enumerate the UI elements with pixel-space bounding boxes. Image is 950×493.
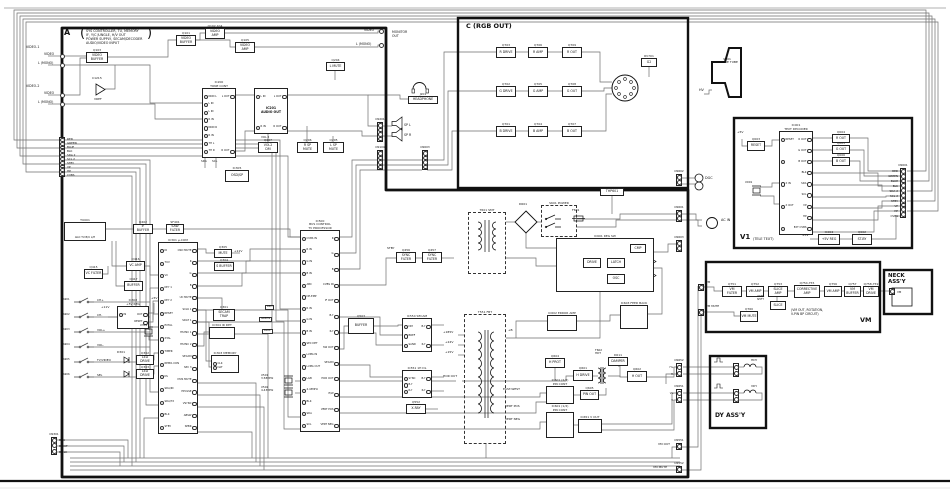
wire [340, 393, 546, 397]
module-g2: G2RV701 [641, 58, 657, 67]
label: +B [508, 329, 513, 332]
label: LEVEL SHIFT [757, 296, 764, 302]
connector-pin-label: B OUT [59, 444, 68, 448]
module-vm-buffer: VM BUFFERQ757 [844, 286, 861, 297]
board-vm-note: (VM OUT, ROTATION, V-PIN BP CIRCUIT) [791, 309, 823, 317]
label: RED [265, 305, 274, 310]
module-mute-q305: MUTEQ305 [214, 249, 232, 258]
module-pin-out: PIN OUTQ605 [580, 390, 599, 400]
module-ref: TU001 [80, 219, 90, 222]
connector-pin-label: BLUE [873, 179, 898, 183]
wire [62, 104, 202, 119]
module-ref: Q552 [412, 401, 420, 404]
switch-label: CH+ [97, 299, 104, 302]
label: VM MUTE [706, 305, 719, 308]
wire [577, 220, 676, 227]
label: +11V [234, 250, 242, 253]
connector-jack-video-2 [59, 92, 65, 98]
module-ref: T601 SMT [480, 209, 495, 212]
label: X001 [745, 181, 752, 184]
wire [760, 196, 779, 204]
connector-cn602 [676, 174, 682, 186]
module-ic304: IC304 IR DET [209, 327, 235, 339]
module-g-out: G OUTQ708 [562, 86, 582, 97]
module-ref: Q754,755 [800, 282, 815, 285]
module-ref: IC601 (2/2) PIN CONT [552, 379, 569, 386]
connector-cn001 [900, 168, 906, 218]
connector-dy-conn-v [733, 389, 739, 403]
module-ref: Q760 [745, 308, 753, 311]
module-r-sp-mute: R SP MUTEQ206 [297, 142, 318, 153]
module-tuner: TU001AGC TU B/U L/H [64, 222, 106, 241]
switch-ref: S903 [63, 329, 70, 332]
label: SP L [404, 124, 411, 128]
connector-cn104 [377, 150, 383, 170]
label: HOR OUT [443, 375, 457, 378]
label: T602 HDT [595, 349, 602, 355]
connector-jack-mon-video [378, 28, 384, 34]
module-ref: IC303 MEMORY [214, 352, 237, 355]
neck-assy-label: NECK ASS'Y [888, 274, 906, 286]
module-headphone-box: HEADPHONEJ201 [408, 96, 438, 104]
wire [198, 249, 214, 253]
module-ref: Q703 [502, 44, 510, 47]
connector-cn301 [51, 437, 57, 455]
label: +5V [151, 297, 157, 300]
module-slice: SLICE [770, 301, 786, 310]
module-ref: Q416 [131, 258, 139, 261]
module-ref: Q417 [129, 278, 137, 281]
wire [57, 440, 128, 458]
switch-icon-SEL [74, 373, 94, 378]
connector-pin-label: RED [873, 169, 898, 173]
module-led-drive-1: LED DRIVEQ302 [136, 355, 154, 365]
module-ref: S601 POWER [549, 202, 569, 205]
label: +24V [445, 341, 453, 344]
module-b-out: B OUTQ707 [562, 126, 582, 137]
label: X502 4.43MHz [261, 386, 273, 392]
label: VERT POS [505, 405, 520, 408]
module-ref: Q402 [139, 221, 147, 224]
module-vc-amp: VC AMPQ416 [126, 261, 145, 271]
wire [681, 214, 702, 220]
connector-cn201 [377, 122, 383, 142]
wire [198, 273, 300, 286]
module-ref: IC304 IR DET [212, 324, 232, 327]
switch-icon-CH- [74, 313, 94, 318]
connector-ref: CN602 [664, 169, 694, 173]
connector-pin-label: VP [873, 204, 898, 208]
module-vm-mute: VM MUTEQ760 [740, 311, 758, 322]
picture-tube-shape [712, 48, 741, 97]
wire [57, 446, 124, 462]
wire [198, 407, 264, 470]
connector-jack-mon-audio [378, 42, 384, 48]
buffer-opamp-icon [96, 84, 105, 95]
wire [340, 422, 546, 429]
d301-diode-icons [124, 357, 129, 377]
connector-ref: CN201 [365, 117, 395, 121]
module-ref: SF401 [170, 221, 179, 224]
module-cmp: CMP [630, 244, 646, 253]
wire [582, 52, 612, 82]
module-vm-amp-2: VM AMPQ756 [824, 286, 842, 297]
module-ref: Q751 [728, 283, 736, 286]
label: ( [80, 27, 85, 42]
module-ref: IC551 1H DL [408, 367, 427, 370]
module-ic551: IC551 1H DLSYNCB-YR-YB-YR-Y [402, 370, 432, 398]
wire [582, 94, 612, 131]
module-ic603: IC603 FEED BACK [620, 305, 648, 329]
connector-neck-pin [889, 288, 895, 295]
board-vm-label: VM [860, 317, 872, 324]
connector-pin-label: BLK [873, 184, 898, 188]
wire [872, 216, 900, 239]
connector-cn003 [422, 150, 428, 170]
switch-icon-VOL+ [74, 328, 94, 333]
module-ref: Q305 [219, 246, 227, 249]
connector-pin-label: B IN [59, 438, 65, 442]
module-r-amp: R AMPQ706 [528, 47, 548, 58]
board-v1-label: V1 [740, 234, 750, 241]
wire [427, 131, 496, 170]
wire [582, 88, 612, 91]
hdt-coil-icon [598, 367, 606, 384]
connector-cn-left-edge [59, 137, 65, 177]
neck-inner-box [892, 288, 912, 306]
switch-icon-VOL- [74, 343, 94, 348]
module-s-buffer: S BUFFERQ304 [214, 262, 234, 271]
switch-ref: S905 [63, 359, 70, 362]
switch-ref: S901 [63, 299, 70, 302]
label: VIDEO [44, 53, 54, 57]
board-c-label: C (RGB OUT) [466, 23, 512, 30]
module-drive: DRIVE [583, 258, 601, 268]
label: SP R [404, 134, 411, 138]
module-osd-sp: OSD/SPIC305 [225, 170, 249, 182]
module-ic200: IC200 TONE CONTNON LL INL INR INNON RR I… [202, 88, 236, 158]
module-ref: Q005 [837, 142, 845, 145]
wire [145, 266, 158, 275]
module-buffer-q503: BUFFERQ503 [348, 318, 374, 334]
module-ref: Q503 [357, 315, 365, 318]
connector-pin-label: VM [897, 290, 901, 294]
label: +15V [445, 351, 453, 354]
wire [599, 388, 606, 395]
ac-plug-icon [707, 218, 718, 229]
label: +5V [802, 234, 808, 237]
module-r-drive: R DRIVEQ703 [496, 47, 516, 58]
module-ref: Q709 [568, 44, 576, 47]
connector-jack-mono-1 [59, 62, 65, 68]
module-video-buffer-2: VIDEO BUFFERQ101 [176, 35, 196, 46]
wire [681, 220, 702, 226]
module-ref: Q707 [568, 123, 576, 126]
wire [681, 286, 698, 447]
switch-ref: S904 [63, 344, 70, 347]
label: C1215 [92, 77, 102, 80]
module-v1-5v-reg: +5V REGIC002 [818, 234, 840, 245]
wire [340, 365, 402, 377]
connector-ref: CN001 [888, 163, 918, 167]
connector-pin-label: SDA 2 [873, 189, 898, 193]
module-x-ray: X-RAYQ552 [406, 404, 426, 414]
switch-label: CH- [97, 314, 102, 317]
connector-pin-label: HP [873, 209, 898, 213]
module-ic602: IC602 ERROR AMP [547, 315, 577, 331]
module-pin-cont-2: IC601 (2/2) PIN CONT [546, 386, 574, 404]
module-ic554: IC554 SECAMDMBREFSANDB-YR-Y [402, 318, 432, 352]
wire [738, 367, 762, 374]
wire [618, 366, 620, 377]
module-b-drive: B DRIVEQ701 [496, 126, 516, 137]
label: STBY [387, 247, 394, 250]
label: V901 PICTURE TUBE [713, 58, 741, 65]
label: DGC [705, 177, 713, 181]
module-vm-filter: VM FILTERQ751 [722, 286, 742, 297]
module-osc: OSC [607, 274, 625, 284]
module-g-drive: G DRIVEQ702 [496, 86, 516, 97]
module-h-drive: H DRIVEQ601 [573, 370, 593, 381]
module-b-amp: B AMPQ704 [528, 126, 548, 137]
wire [368, 95, 408, 99]
module-vol2-det: VOL2 DMQ207 [258, 142, 278, 153]
label: VERT NEG [505, 418, 520, 421]
module-ref: IC554 SECAM [407, 315, 427, 318]
connector-pin-label: H- [649, 372, 674, 376]
connector-cn551 [676, 443, 682, 450]
module-ic301: IC301 µ-COMIRTUVVCKEY 1KEY 2RESETEXTALXT… [158, 242, 198, 434]
module-pin-cont-1: IC601 (1/2) PIN CONT [546, 412, 574, 438]
module-ref: Q415 [89, 266, 97, 269]
connector-vm-pin-1 [698, 284, 704, 291]
label: VIDEO [44, 92, 54, 96]
wire [516, 321, 547, 338]
label: HV [699, 89, 704, 93]
label: SCL [212, 160, 217, 163]
board-v1-sublabel: (TELE TEXT) [753, 237, 774, 241]
module-ref: Q302 [141, 352, 149, 355]
module-ref: Q705 [534, 83, 542, 86]
module-sync-filter-1: SYNC FILTERQ456 [396, 252, 416, 263]
module-ref: IC302 +5V REG [126, 299, 140, 306]
module-ref: Q301 [220, 306, 228, 309]
module-ref: Q206 [303, 139, 311, 142]
module-ref: Q004 [837, 131, 845, 134]
wire [116, 241, 124, 286]
wire [340, 160, 422, 237]
label: MONITOR OUT [392, 31, 407, 38]
switch-icon-TV/VIDEO [74, 358, 94, 363]
switch-ref: S906 [63, 374, 70, 377]
wire [288, 131, 377, 136]
wire [577, 315, 620, 321]
label: VDY [751, 385, 757, 388]
module-ref: Q706 [534, 44, 542, 47]
board-vm-outline [706, 262, 880, 332]
connector-pin-label: H+ [649, 365, 674, 369]
module-ref: IC651 V OUT [580, 416, 599, 419]
connector-pin-label: V- [649, 398, 674, 402]
label: VIDEO [364, 29, 374, 33]
module-ref: IC305 [233, 167, 242, 170]
label: +185V [443, 331, 453, 334]
switch-label: TV/VIDEO [97, 359, 111, 362]
module-ref: Q702 [502, 83, 510, 86]
module-t601: T601 SMT [468, 212, 506, 274]
module-ref: IC002 [825, 231, 834, 234]
connector-pin-label: CVBS [873, 214, 898, 218]
module-ref: Q602 [633, 368, 641, 371]
wire [608, 376, 627, 377]
module-thp601: THP601 [600, 188, 624, 196]
module-ref: Q456 [402, 249, 410, 252]
module-ref: Q205 [329, 139, 337, 142]
connector-jack-video-1 [59, 53, 65, 59]
wire [62, 58, 86, 95]
switch-label: VOL+ [97, 329, 105, 332]
wire [427, 52, 496, 160]
module-video-amp-2: VIDEO AMPQ105 [235, 42, 255, 53]
module-ref: Q105 [241, 39, 249, 42]
connector-pin-label: V+ [649, 391, 674, 395]
label: D301 [117, 351, 125, 354]
label: X301 [140, 324, 147, 327]
wire [340, 326, 348, 349]
wire [62, 65, 202, 103]
module-ref: IC001 TEXT DECODER [784, 124, 807, 131]
degauss-coil-icon [695, 174, 703, 190]
connector-dy-conn-h [733, 363, 739, 377]
module-ref: Q708 [568, 83, 576, 86]
module-ref: RV701 [644, 55, 654, 58]
module-b-out-q006: B OUTQ006 [832, 157, 850, 166]
connector-ref: CN552 [664, 461, 694, 465]
module-ref: Q756 [829, 283, 837, 286]
wire [703, 312, 740, 316]
module-g-amp: G AMPQ705 [528, 86, 548, 97]
wire [198, 298, 222, 309]
wire [184, 229, 300, 237]
module-ic001: IC001 TEXT DECODERRESETX INX OUTR OUTG O… [779, 131, 813, 235]
wire [340, 258, 396, 285]
crt-socket-pins [615, 78, 636, 99]
module-video-amp-1: VIDEO AMPQ102,104 [205, 28, 225, 39]
label: ) [147, 27, 152, 42]
module-latch: LATCH [607, 258, 625, 268]
module-h-prot: H PROTQ604 [545, 358, 565, 368]
label: L (MONO) [38, 101, 53, 105]
label: HDY [751, 359, 757, 362]
connector-vm-pin-2 [698, 309, 704, 316]
board-a-note: SYS CONTROLLER, TU, MEMORY IF, Y/C JUNGL… [86, 29, 146, 45]
module-ref: Q102,104 [208, 25, 223, 28]
module-ic201: IC201 AUDIO OUTL INR INL OUTR OUT [254, 88, 288, 134]
wire [196, 33, 205, 40]
label: VM OUT [658, 443, 670, 446]
module-ref: IC601 REG SW [594, 235, 616, 238]
label: BLUE [262, 329, 273, 334]
module-video-buffer-1: VIDEO BUFFERQ103 [86, 52, 108, 63]
module-ref: Q758,759 [864, 283, 879, 286]
connector-cn603 [676, 240, 682, 252]
module-ref: Q002 [858, 231, 866, 234]
connector-ref: CN301 [39, 432, 69, 436]
wire [577, 214, 676, 219]
module-saw-filter: SAW FILTERSF401 [166, 224, 184, 234]
label: VM MUTE [653, 466, 667, 469]
module-corrective-amp: CORRECTIVE AMPQ754,755 [794, 285, 820, 298]
connector-ref: CN603 [664, 235, 694, 239]
module-l-sp-mute: L SP MUTEQ205 [323, 142, 344, 153]
wire [704, 90, 712, 94]
module-ref: D611 [614, 354, 622, 357]
module-ref: IC500 BUS CONTROL TV PROCESSOR [308, 220, 331, 230]
module-ref: Q204 [331, 59, 339, 62]
label: X501 3.58MHz [261, 374, 273, 380]
wire [654, 244, 676, 252]
module-ref: Q605 [585, 387, 593, 390]
wire [196, 40, 235, 47]
module-ic651: IC651 V OUT [578, 419, 602, 433]
label: AC IN [721, 219, 730, 223]
label: VIDEO-1 [26, 46, 39, 50]
connector-ref: CN551 [664, 438, 694, 442]
module-ref: Q701 [502, 123, 510, 126]
wire [225, 31, 381, 33]
switch-label: VOL- [97, 344, 104, 347]
wire [602, 400, 679, 430]
module-if-buffer: IF BUFFERQ402 [133, 224, 153, 234]
module-l-mute: L MUTEQ204 [326, 62, 345, 71]
module-secam-trap: SECAM TRAPQ301 [213, 309, 235, 321]
module-ref: IC601 (1/2) PIN CONT [552, 405, 569, 412]
label: VM [706, 281, 710, 284]
module-ref: IC602 ERROR AMP [548, 312, 576, 315]
wire [144, 418, 158, 458]
module-ic303: IC303 MEMORYCLKDAT [211, 355, 239, 373]
wire [506, 258, 556, 266]
connector-pin-label: GREEN [873, 174, 898, 178]
label: L (MONO) [356, 43, 371, 47]
module-ref: J201 [420, 93, 427, 96]
connector-ref: CN104 [365, 145, 395, 149]
label: F601 [572, 209, 579, 212]
label: +5V [737, 131, 743, 134]
connector-pin-label: B CLK [59, 450, 67, 454]
wire [198, 395, 260, 466]
module-sync-filter-2: SYNC FILTERQ457 [422, 252, 442, 263]
connector-ref: CN601 [664, 205, 694, 209]
wire [103, 266, 108, 274]
wire [374, 325, 402, 326]
connector-jack-mono-2 [59, 101, 65, 107]
module-buffer-q417: BUFFERQ417 [124, 281, 143, 291]
wire [760, 183, 779, 187]
connector-ref: CN651 [664, 384, 694, 388]
module-ref: IC200 TONE CONT [210, 81, 228, 88]
module-ref: Q752 [751, 283, 759, 286]
module-ref: Q003 [752, 138, 760, 141]
module-ref: Q101 [182, 32, 190, 35]
schematic-page: A SYS CONTROLLER, TU, MEMORY IF, Y/C JUN… [0, 0, 950, 493]
module-ic500: IC500 BUS CONTROL TV PROCESSORCVBS INR I… [300, 230, 340, 432]
wire [765, 140, 779, 146]
wire [105, 65, 115, 89]
module-slice-amp: SLICE AMPQ753 [768, 286, 788, 297]
module-ref: IC301 µ-COM [168, 239, 188, 242]
label: EAST-WEST [503, 388, 520, 391]
